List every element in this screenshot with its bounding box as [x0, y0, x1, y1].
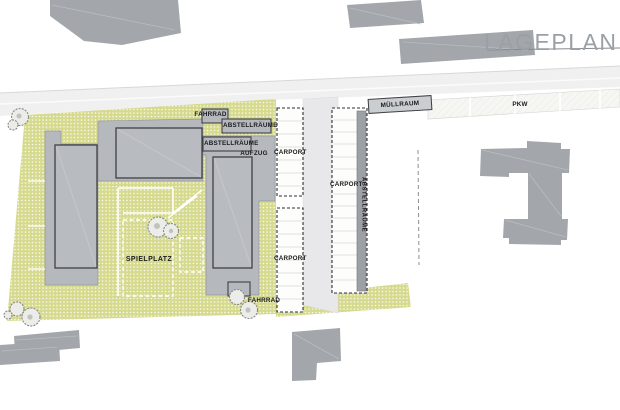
neighbor-building-bottom-center [292, 328, 341, 381]
neighbor-building-top-center [347, 0, 424, 28]
abstellraum-box-top [222, 119, 271, 133]
siteplan-drawing [0, 0, 620, 410]
abstellraum-box-mid [203, 137, 251, 151]
pkw-parking-strip [428, 89, 620, 119]
siteplan-canvas: LAGEPLAN FAHRRAD ABSTELLRÄUME ABSTELLRÄU… [0, 0, 620, 410]
label-muellraum: MÜLLRAUM [380, 100, 419, 109]
label-abstellraeume-vertical: ABSTELLRÄUME [358, 158, 367, 252]
boundary-dashed-line [418, 150, 419, 265]
neighbor-building-top-left [50, 0, 181, 45]
neighbor-building-bottom-left-b [0, 341, 60, 365]
neighbor-building-right [480, 141, 570, 245]
page-title: LAGEPLAN [484, 29, 620, 56]
